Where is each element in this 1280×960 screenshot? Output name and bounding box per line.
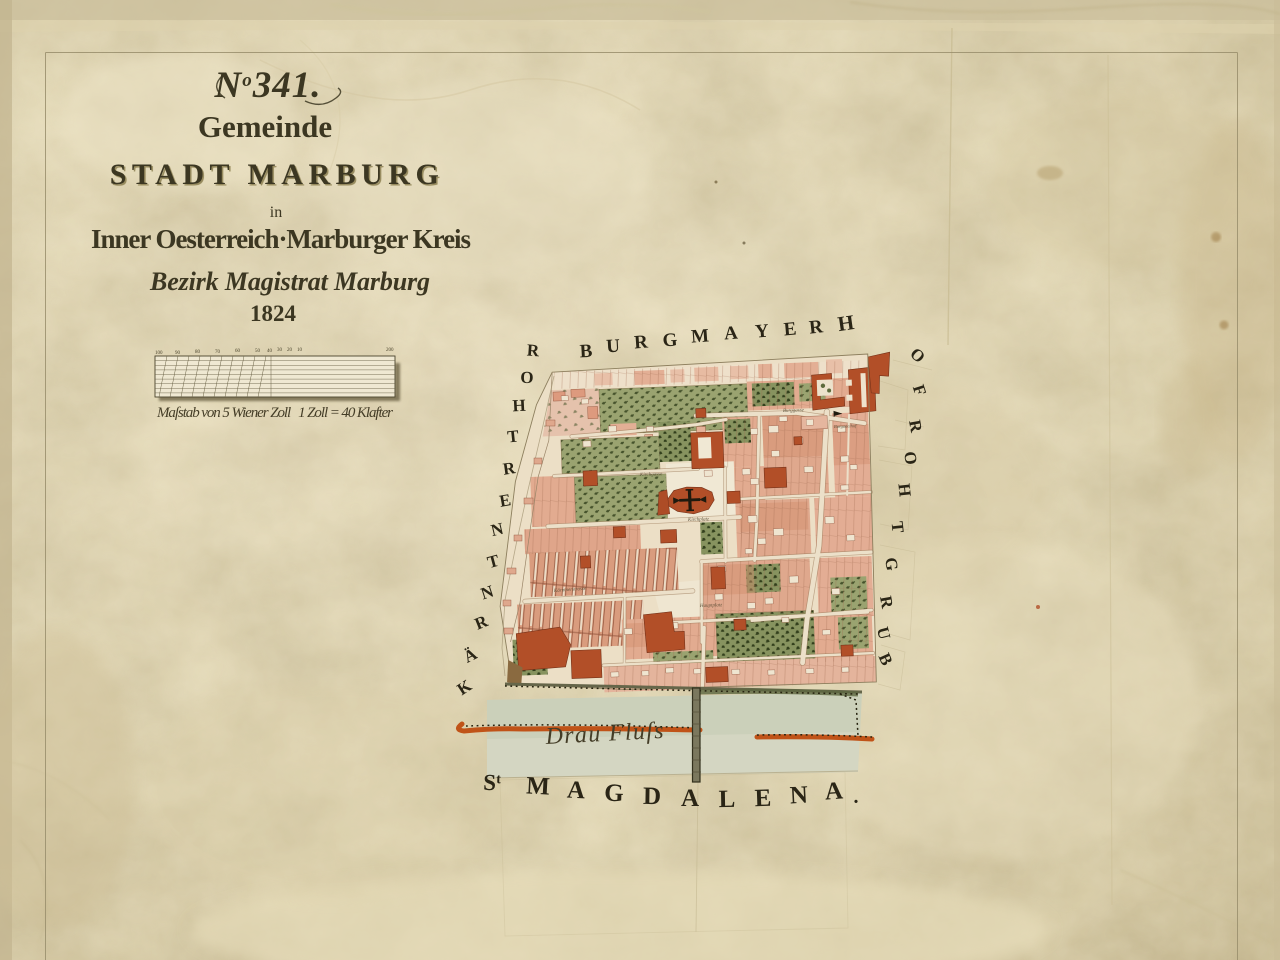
svg-text:H: H (836, 310, 856, 336)
svg-text:A: A (824, 777, 844, 805)
svg-text:.: . (854, 786, 859, 808)
svg-text:G: G (881, 556, 902, 572)
svg-text:Bezirk Magistrat Marburg: Bezirk Magistrat Marburg (149, 267, 430, 296)
svg-text:70: 70 (215, 350, 221, 355)
svg-text:Inner Oesterreich·Marburger Kr: Inner Oesterreich·Marburger Kreis (91, 224, 471, 254)
svg-text:H: H (512, 396, 526, 416)
svg-text:A: A (723, 323, 738, 345)
svg-text:O: O (520, 368, 534, 387)
svg-text:Gemeinde: Gemeinde (198, 109, 332, 144)
svg-text:40: 40 (267, 349, 273, 354)
svg-text:E: E (754, 785, 772, 813)
svg-text:100: 100 (155, 351, 163, 356)
svg-text:L: L (718, 786, 735, 813)
svg-text:Burggasse: Burggasse (783, 408, 805, 414)
svg-text:U: U (606, 336, 621, 358)
svg-text:M: M (690, 325, 709, 347)
svg-text:STADT MARBURG: STADT MARBURG (110, 158, 445, 191)
svg-text:N: N (789, 782, 808, 810)
svg-text:G: G (604, 780, 624, 808)
svg-text:Maſstab von 5 Wiener Zoll 1: Maſstab von 5 Wiener Zoll 1 Zoll = 40 Kl… (156, 405, 393, 421)
svg-text:10: 10 (297, 348, 303, 353)
svg-text:M: M (526, 772, 551, 800)
svg-text:50: 50 (255, 349, 261, 354)
svg-text:Burgadelhof: Burgadelhof (834, 423, 857, 429)
svg-text:R: R (526, 341, 540, 361)
svg-text:200: 200 (386, 348, 394, 353)
svg-text:O: O (900, 450, 921, 466)
svg-text:G: G (662, 329, 678, 351)
svg-text:A: A (566, 777, 585, 805)
svg-text:Kirchplatz: Kirchplatz (687, 517, 709, 523)
svg-text:E: E (783, 318, 797, 340)
svg-text:in: in (270, 204, 282, 221)
svg-text:D: D (643, 783, 662, 810)
svg-text:Kirchgasse: Kirchgasse (639, 472, 663, 478)
svg-text:R: R (808, 316, 824, 338)
svg-text:R: R (633, 332, 648, 354)
svg-text:Y: Y (754, 320, 770, 342)
svg-text:H: H (894, 482, 914, 497)
svg-text:A: A (681, 785, 699, 812)
svg-text:30: 30 (277, 348, 283, 353)
svg-text:20: 20 (287, 348, 293, 353)
svg-text:Hauptplatz: Hauptplatz (699, 603, 722, 609)
svg-text:60: 60 (235, 349, 241, 354)
svg-text:90: 90 (175, 351, 181, 356)
svg-text:1824: 1824 (250, 301, 297, 326)
svg-text:No341.: No341. (214, 65, 322, 106)
svg-text:80: 80 (195, 350, 201, 355)
svg-text:B: B (579, 341, 593, 363)
